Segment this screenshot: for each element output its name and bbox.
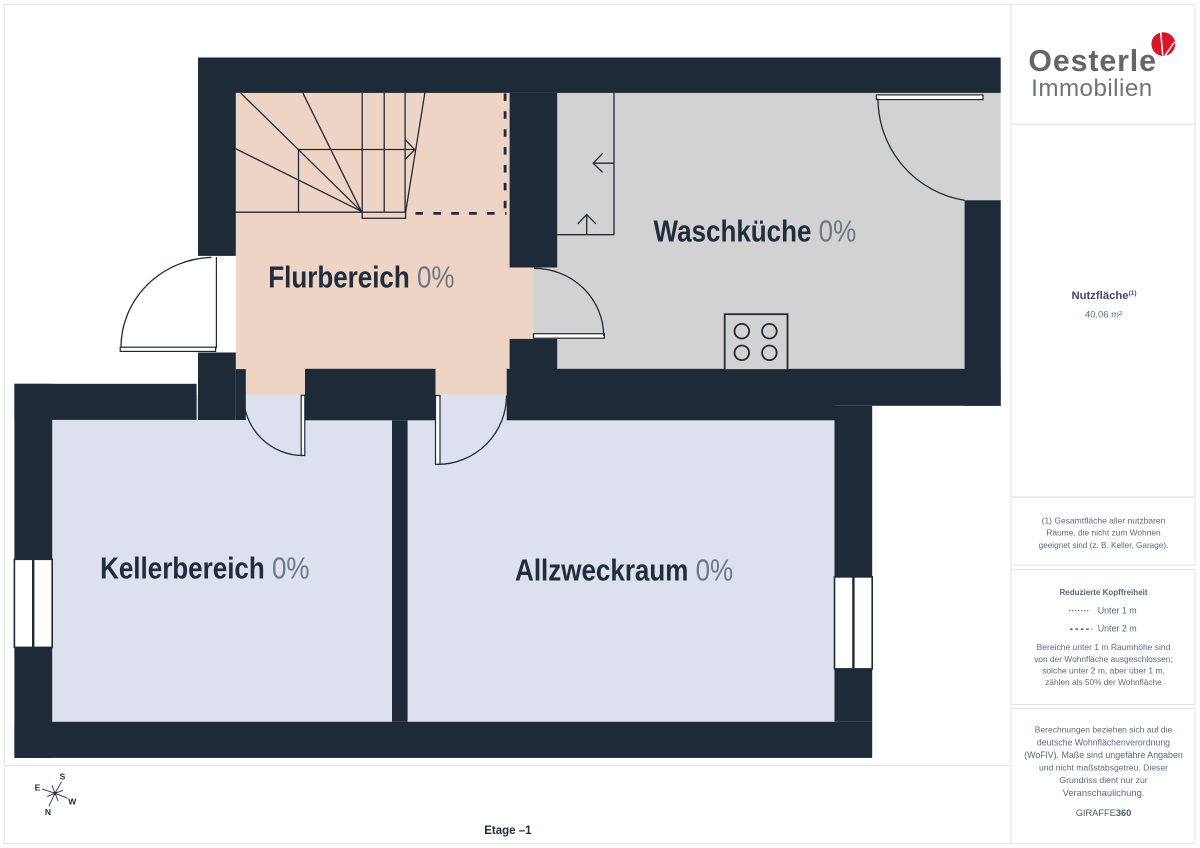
svg-text:GIRAFFE360: GIRAFFE360	[1076, 808, 1132, 818]
svg-text:Etage –1: Etage –1	[484, 825, 532, 837]
svg-text:W: W	[68, 797, 77, 807]
svg-text:Räume, die nicht zum Wohnen: Räume, die nicht zum Wohnen	[1046, 528, 1161, 538]
svg-text:Immobilien: Immobilien	[1031, 75, 1152, 102]
svg-text:Veranschaulichung.: Veranschaulichung.	[1063, 787, 1145, 798]
svg-text:40.06 m²: 40.06 m²	[1085, 309, 1122, 320]
svg-text:Oesterle: Oesterle	[1028, 45, 1156, 78]
svg-text:Flurbereich 0%: Flurbereich 0%	[268, 261, 454, 294]
svg-text:E: E	[35, 783, 41, 793]
svg-text:N: N	[45, 807, 51, 817]
svg-text:Berechnungen beziehen sich auf: Berechnungen beziehen sich auf die	[1035, 725, 1173, 735]
svg-text:Grundriss dient nur zur: Grundriss dient nur zur	[1059, 775, 1147, 785]
svg-text:Reduzierte Kopffreiheit: Reduzierte Kopffreiheit	[1059, 588, 1147, 597]
svg-text:Allzweckraum 0%: Allzweckraum 0%	[515, 554, 733, 587]
svg-text:Nutzfläche(1): Nutzfläche(1)	[1071, 290, 1136, 302]
svg-text:Kellerbereich 0%: Kellerbereich 0%	[100, 552, 309, 585]
svg-text:Unter 2 m: Unter 2 m	[1098, 624, 1137, 634]
svg-text:Unter 1 m: Unter 1 m	[1098, 605, 1137, 615]
svg-text:solche unter 2 m, aber über 1: solche unter 2 m, aber über 1 m,	[1042, 666, 1165, 676]
svg-text:geeignet sind (z. B. Keller, G: geeignet sind (z. B. Keller, Garage).	[1039, 541, 1169, 550]
svg-text:S: S	[60, 772, 66, 782]
svg-text:zählen als 50% der Wohnfläche: zählen als 50% der Wohnfläche	[1045, 677, 1162, 687]
svg-text:(1) Gesamtfläche aller nutzbar: (1) Gesamtfläche aller nutzbaren	[1042, 515, 1166, 525]
svg-text:von der Wohnfläche ausgeschlos: von der Wohnfläche ausgeschlossen;	[1034, 654, 1173, 664]
svg-text:Waschküche 0%: Waschküche 0%	[654, 215, 857, 248]
svg-text:und nicht maßstabsgetreu. Dies: und nicht maßstabsgetreu. Dieser	[1039, 763, 1168, 773]
svg-text:(WoFlV). Maße sind ungefähre A: (WoFlV). Maße sind ungefähre Angaben	[1024, 750, 1183, 760]
svg-text:deutsche Wohnflächenverordnung: deutsche Wohnflächenverordnung	[1037, 737, 1170, 747]
svg-text:Bereiche unter 1 m Raumhöhe si: Bereiche unter 1 m Raumhöhe sind	[1037, 642, 1171, 652]
